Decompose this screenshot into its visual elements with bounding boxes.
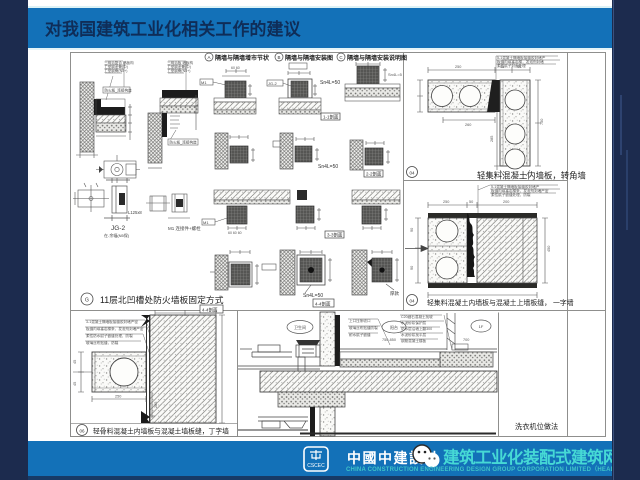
svg-text:90: 90 <box>410 228 414 232</box>
svg-text:洗衣机位做法: 洗衣机位做法 <box>515 422 558 431</box>
svg-text:450: 450 <box>547 246 551 252</box>
svg-text:隔墙与隔墙增市节状: 隔墙与隔墙增市节状 <box>215 54 270 62</box>
svg-text:250: 250 <box>443 200 449 204</box>
svg-text:1F: 1F <box>479 324 484 329</box>
svg-text:50: 50 <box>469 200 473 204</box>
svg-text:250: 250 <box>115 395 121 399</box>
svg-text:C: C <box>339 55 343 60</box>
svg-text:04: 04 <box>409 299 415 304</box>
svg-text:JG-2: JG-2 <box>268 81 277 86</box>
svg-text:厚款: 厚款 <box>390 290 399 297</box>
svg-text:防火板_连接构造: 防火板_连接构造 <box>105 88 133 93</box>
svg-text:45: 45 <box>517 65 521 69</box>
svg-text:M1 连接件+螺栓: M1 连接件+螺栓 <box>168 225 201 232</box>
svg-text:45: 45 <box>73 382 77 386</box>
svg-text:轻集料混凝土内墙板与混凝土上墙板缝， 一字墙: 轻集料混凝土内墙板与混凝土上墙板缝， 一字墙 <box>427 298 574 307</box>
svg-text:3-3剖面: 3-3剖面 <box>327 232 343 239</box>
svg-text:60 60: 60 60 <box>231 66 240 70</box>
svg-text:200: 200 <box>503 200 509 204</box>
svg-text:轻集料混凝土内墙板，转角墙: 轻集料混凝土内墙板，转角墙 <box>477 171 586 181</box>
svg-text:工型钢骨(N5+): 工型钢骨(N5+) <box>167 68 190 73</box>
svg-text:JG-2: JG-2 <box>111 225 125 232</box>
svg-text:板缝内填塞岩棉条，发泡剂封堵严密: 板缝内填塞岩棉条，发泡剂封堵严密 <box>86 326 144 331</box>
svg-text:柔性腻子嵌缝处理，防裂: 柔性腻子嵌缝处理，防裂 <box>491 192 531 197</box>
svg-text:11层北凹槽处防火墙板固定方式: 11层北凹槽处防火墙板固定方式 <box>100 294 224 305</box>
svg-text:上口压条收口: 上口压条收口 <box>349 318 371 323</box>
svg-text:工型钢骨(N5+): 工型钢骨(N5+) <box>104 68 127 73</box>
svg-text:45: 45 <box>73 360 77 364</box>
svg-text:G: G <box>85 298 89 304</box>
svg-text:Sn4L=50: Sn4L=50 <box>320 80 340 86</box>
svg-text:隔墙与隔墙安装说明图: 隔墙与隔墙安装说明图 <box>347 54 407 62</box>
svg-text:285: 285 <box>490 136 494 142</box>
svg-text:750-850: 750-850 <box>382 338 396 342</box>
svg-text:水泥砂浆保护层: 水泥砂浆保护层 <box>401 320 427 325</box>
svg-text:L125x8: L125x8 <box>128 210 142 215</box>
svg-text:轻骨料混凝土内墙板与混凝土墙板缝，丁字墙: 轻骨料混凝土内墙板与混凝土墙板缝，丁字墙 <box>93 427 229 436</box>
svg-text:06: 06 <box>79 429 85 434</box>
svg-text:在-余辐(N5保): 在-余辐(N5保) <box>104 232 130 238</box>
svg-text:M1: M1 <box>201 80 207 85</box>
svg-text:柔性防水腻子嵌缝处理，防裂: 柔性防水腻子嵌缝处理，防裂 <box>86 333 133 338</box>
svg-text:4-4剖面: 4-4剖面 <box>202 307 218 314</box>
svg-text:防水层沿墙上翻300: 防水层沿墙上翻300 <box>401 326 432 331</box>
svg-text:耐水腻子嵌缝: 耐水腻子嵌缝 <box>349 332 371 337</box>
svg-text:玻璃丝布贴缝，防裂: 玻璃丝布贴缝，防裂 <box>86 340 119 345</box>
svg-text:700: 700 <box>463 338 469 342</box>
svg-text:750: 750 <box>540 119 544 125</box>
svg-text:A: A <box>207 55 210 60</box>
svg-text:260: 260 <box>465 123 471 127</box>
svg-text:1-1剖面: 1-1剖面 <box>323 114 339 121</box>
svg-text:CSCEC: CSCEC <box>307 463 325 469</box>
svg-text:水泥砂浆找平层: 水泥砂浆找平层 <box>401 332 427 337</box>
svg-text:B: B <box>277 55 280 60</box>
svg-text:4-4剖面: 4-4剖面 <box>315 301 331 308</box>
svg-text:60 60 60: 60 60 60 <box>228 231 242 235</box>
svg-text:卫生间: 卫生间 <box>294 324 306 330</box>
svg-text:2-2剖面: 2-2剖面 <box>366 171 382 178</box>
svg-text:Sn4L=5: Sn4L=5 <box>388 72 403 77</box>
svg-text:Sn4L=50: Sn4L=50 <box>318 164 338 170</box>
svg-text:防火板_连接构造: 防火板_连接构造 <box>170 140 198 145</box>
svg-text:Sn4L=50: Sn4L=50 <box>303 293 323 299</box>
svg-text:250: 250 <box>455 65 461 69</box>
svg-text:M1: M1 <box>203 220 209 225</box>
svg-text:04: 04 <box>409 171 415 176</box>
svg-text:阳台: 阳台 <box>390 324 398 330</box>
svg-text:285: 285 <box>154 402 158 408</box>
svg-text:C20细石混凝土找坡: C20细石混凝土找坡 <box>401 314 433 319</box>
svg-text:45: 45 <box>500 65 504 69</box>
svg-text:90: 90 <box>410 266 414 270</box>
svg-text:玻璃丝布贴缝防裂: 玻璃丝布贴缝防裂 <box>349 325 378 330</box>
svg-text:3-1混凝土隔墙板接缝胶封堵严密: 3-1混凝土隔墙板接缝胶封堵严密 <box>86 319 138 324</box>
svg-text:钢筋混凝土楼板: 钢筋混凝土楼板 <box>401 338 427 343</box>
svg-text:隔墙与隔墙安装图: 隔墙与隔墙安装图 <box>285 54 333 62</box>
